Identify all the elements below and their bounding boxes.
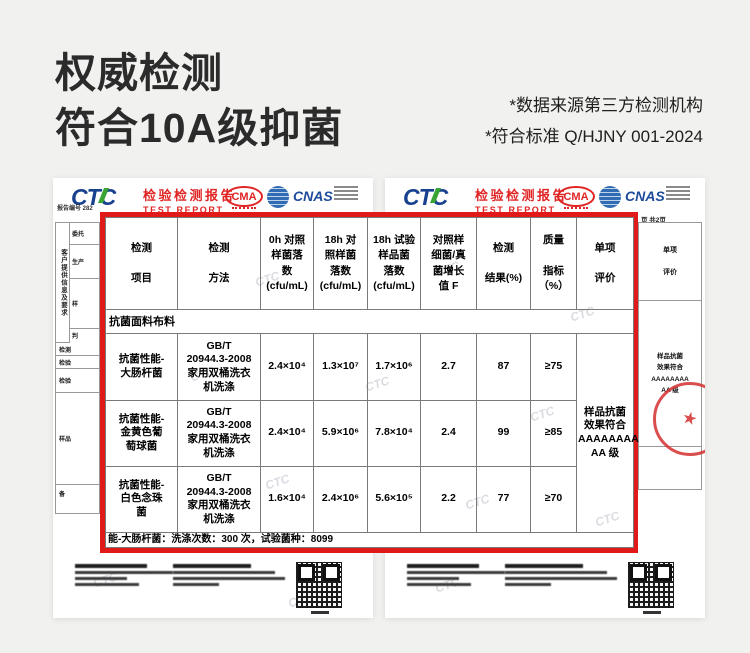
report-header: CTC 检验检测报告 TEST REPORT CMA CNAS: [385, 184, 705, 214]
header-cell: 质量 指标 （%）: [531, 218, 577, 310]
ctc-logo: CTC: [403, 184, 447, 211]
headline-line2: 符合10A级抑菌: [55, 101, 343, 156]
report-footer: [385, 562, 705, 616]
client-info-vertical-header: 客户提供信息及要求: [56, 223, 70, 343]
fine-print-block: [334, 186, 358, 202]
side-row: 生产: [70, 245, 99, 279]
ilac-mra-icon: [267, 186, 289, 208]
data-cell: 抗菌性能- 白色念珠 菌: [106, 466, 178, 532]
footer-address-block: [505, 564, 617, 589]
cnas-accreditation-icon: CNAS: [293, 188, 333, 204]
data-cell: 7.8×10⁴: [368, 400, 421, 466]
test-results-table: 检测 项目 检测 方法 0h 对照 样菌落 数 (cfu/mL) 18h 对 照…: [105, 217, 634, 548]
client-info-rows: 委托 生产 样 判: [70, 223, 99, 342]
header-cell: 检测 结果(%): [477, 218, 531, 310]
data-cell: GB/T 20944.3-2008 家用双桶洗衣 机洗涤: [178, 400, 261, 466]
evaluation-merged-cell: 样品抗菌 效果符合 AAAAAAAA AA 级: [577, 334, 634, 533]
data-cell: 2.2: [421, 466, 477, 532]
fine-print-block: [666, 186, 690, 202]
side-row: 样: [70, 279, 99, 329]
cnas-accreditation-icon: CNAS: [625, 188, 665, 204]
footnote-cell: 能-大肠杆菌：洗涤次数：300 次，试验菌种：8099: [106, 532, 634, 547]
data-cell: 5.9×10⁶: [314, 400, 368, 466]
highlighted-results-frame: CTC CTC CTC CTC CTC CTC CTC CTC CTC 检测 项…: [100, 212, 638, 553]
qr-caption-bar: [643, 611, 661, 614]
header-cell: 18h 对 照样菌 落数 (cfu/mL): [314, 218, 368, 310]
side-row: 备: [56, 485, 99, 501]
header-cell: 对照样 细菌/真 菌增长 值 F: [421, 218, 477, 310]
table-header-row: 检测 项目 检测 方法 0h 对照 样菌落 数 (cfu/mL) 18h 对 照…: [106, 218, 634, 310]
ilac-mra-icon: [599, 186, 621, 208]
header-cell: 单项 评价: [577, 218, 634, 310]
data-cell: ≥70: [531, 466, 577, 532]
data-cell: 1.7×10⁶: [368, 334, 421, 400]
report-footer: [53, 562, 373, 616]
data-cell: 2.7: [421, 334, 477, 400]
data-cell: 5.6×10⁵: [368, 466, 421, 532]
table-row: 抗菌性能- 白色念珠 菌 GB/T 20944.3-2008 家用双桶洗衣 机洗…: [106, 466, 634, 532]
report-title: 检验检测报告 TEST REPORT: [143, 185, 236, 215]
disclaimer: *数据来源第三方检测机构 *符合标准 Q/HJNY 001-2024: [485, 90, 703, 152]
report-number: 报告编号 282: [57, 203, 93, 212]
cma-accreditation-icon: CMA: [557, 186, 595, 207]
side-row: 检验: [56, 356, 99, 369]
data-cell: GB/T 20944.3-2008 家用双桶洗衣 机洗涤: [178, 466, 261, 532]
cma-label: CMA: [231, 191, 256, 203]
table-footnote-row: 能-大肠杆菌：洗涤次数：300 次，试验菌种：8099: [106, 532, 634, 547]
qr-code: [628, 562, 674, 608]
stamp-star-icon: ★: [680, 407, 700, 430]
data-cell: ≥85: [531, 400, 577, 466]
qr-code: [296, 562, 342, 608]
footer-address-block: [173, 564, 285, 589]
data-cell: 抗菌性能- 金黄色葡 萄球菌: [106, 400, 178, 466]
side-row: 判: [70, 329, 99, 342]
data-cell: 2.4×10⁶: [314, 466, 368, 532]
side-row: 检验: [56, 369, 99, 393]
data-cell: 1.3×10⁷: [314, 334, 368, 400]
headline-line1: 权威检测: [55, 46, 343, 101]
report-title-cn: 检验检测报告: [143, 185, 236, 204]
client-info-rows-lower: 检测 检验 检验 样品 备: [56, 343, 99, 501]
data-cell: ≥75: [531, 334, 577, 400]
cma-accreditation-icon: CMA: [225, 186, 263, 207]
cma-label: CMA: [563, 191, 588, 203]
disclaimer-line1: *数据来源第三方检测机构: [485, 90, 703, 121]
table-row: 抗菌性能- 金黄色葡 萄球菌 GB/T 20944.3-2008 家用双桶洗衣 …: [106, 400, 634, 466]
data-cell: 99: [477, 400, 531, 466]
footer-contact-block: [407, 564, 505, 589]
footer-contact-block: [75, 564, 173, 589]
data-cell: 1.6×10⁴: [261, 466, 314, 532]
report-title-cn: 检验检测报告: [475, 185, 568, 204]
data-cell: 87: [477, 334, 531, 400]
table-row: 抗菌性能- 大肠杆菌 GB/T 20944.3-2008 家用双桶洗衣 机洗涤 …: [106, 334, 634, 400]
side-row: 检测: [56, 343, 99, 356]
data-cell: GB/T 20944.3-2008 家用双桶洗衣 机洗涤: [178, 334, 261, 400]
header-cell: 0h 对照 样菌落 数 (cfu/mL): [261, 218, 314, 310]
report-title: 检验检测报告 TEST REPORT: [475, 185, 568, 215]
promo-poster: 权威检测 符合10A级抑菌 *数据来源第三方检测机构 *符合标准 Q/HJNY …: [0, 0, 750, 653]
header-cell: 18h 试验 样品菌 落数 (cfu/mL): [368, 218, 421, 310]
data-cell: 2.4: [421, 400, 477, 466]
data-cell: 抗菌性能- 大肠杆菌: [106, 334, 178, 400]
side-row: 样品: [56, 393, 99, 485]
report-header: CTC 检验检测报告 TEST REPORT CMA CNAS: [53, 184, 373, 214]
data-cell: 2.4×10⁴: [261, 400, 314, 466]
data-cell: 77: [477, 466, 531, 532]
table-section-row: 抗菌面料布料: [106, 310, 634, 334]
data-cell: 2.4×10⁴: [261, 334, 314, 400]
headline: 权威检测 符合10A级抑菌: [55, 46, 343, 155]
section-title-cell: 抗菌面料布料: [106, 310, 634, 334]
header-cell: 检测 方法: [178, 218, 261, 310]
qr-caption-bar: [311, 611, 329, 614]
client-info-side-table: 客户提供信息及要求 委托 生产 样 判 检测 检验 检验 样品 备: [55, 222, 100, 514]
side-row: 委托: [70, 223, 99, 245]
disclaimer-line2: *符合标准 Q/HJNY 001-2024: [485, 121, 703, 152]
evaluation-column-header: 单项 评价: [639, 223, 701, 301]
header-cell: 检测 项目: [106, 218, 178, 310]
